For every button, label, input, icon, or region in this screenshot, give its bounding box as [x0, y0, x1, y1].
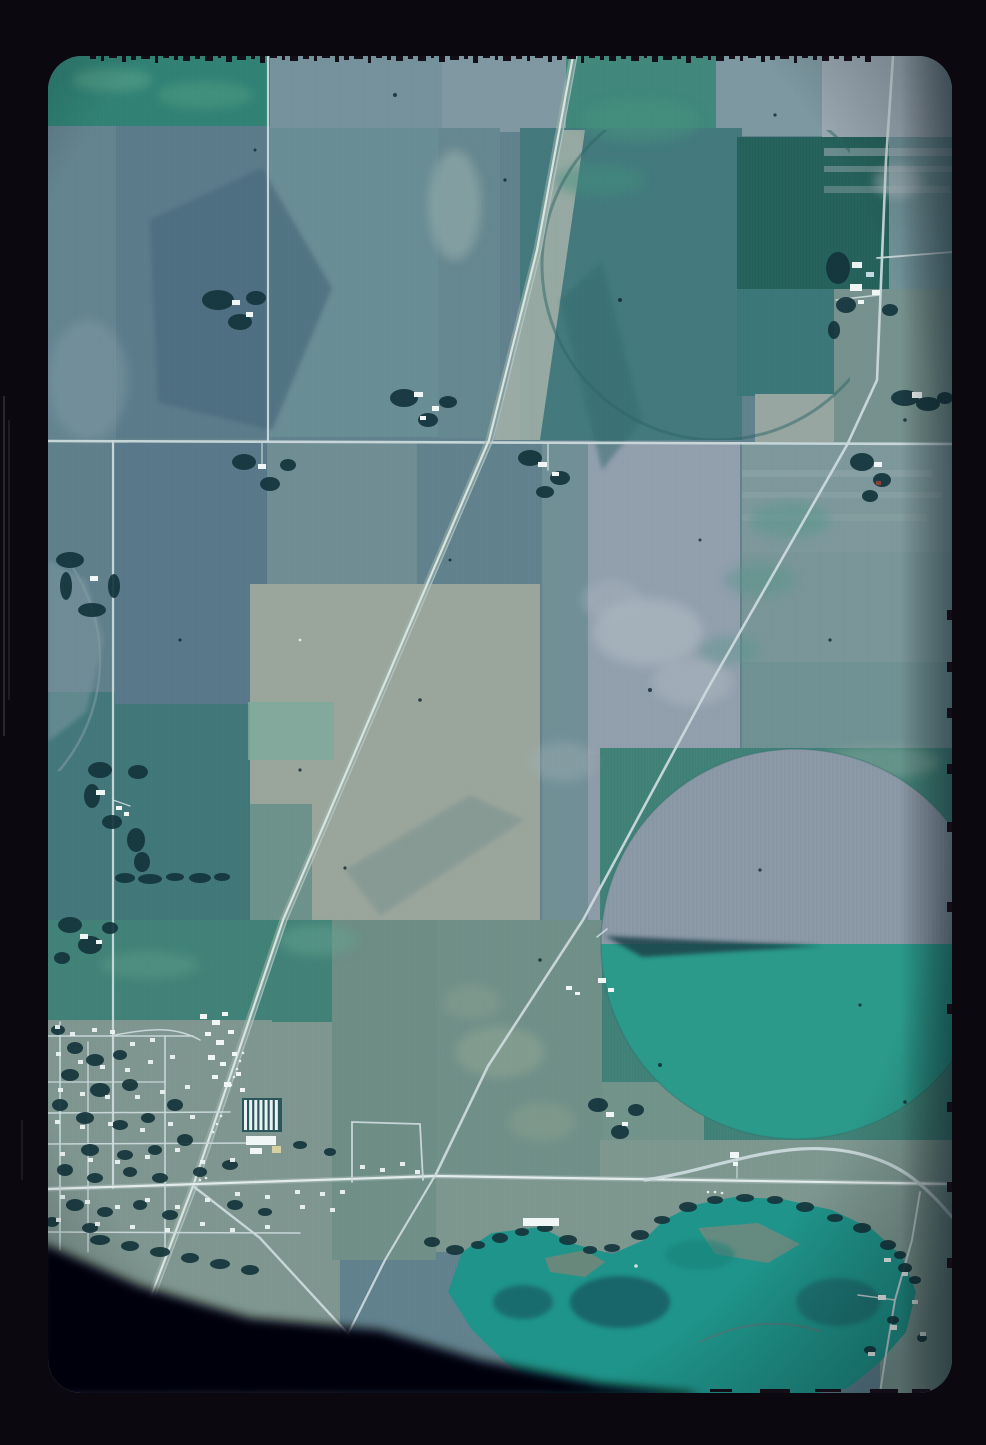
film-edge-tooth-top [686, 55, 691, 63]
dust-speck [903, 418, 907, 422]
film-edge-tooth-top [439, 55, 445, 62]
film-edge-tooth-top [260, 55, 265, 63]
film-edge-tooth-bottom [760, 1389, 790, 1393]
dust-speck [758, 868, 761, 871]
bright-speck [299, 639, 302, 642]
film-edge-tooth-top [794, 55, 797, 63]
dust-speck [773, 113, 776, 116]
film-edge-tooth-top [226, 55, 232, 62]
dust-speck [449, 559, 452, 562]
film-edge-tooth-top [652, 55, 658, 62]
vignette [48, 56, 952, 1393]
film-edge-tooth-top [122, 55, 126, 62]
dust-speck [178, 638, 181, 641]
slide-scan [0, 0, 986, 1445]
film-edge-tooth-top [865, 55, 871, 62]
dust-speck [418, 698, 422, 702]
dust-speck [648, 688, 652, 692]
dust-speck [858, 1003, 861, 1006]
dust-speck [503, 178, 506, 181]
right-edge-shade [900, 56, 952, 1393]
film-edge-tooth-top [548, 55, 552, 62]
dust-speck [828, 638, 831, 641]
film-edge-tooth-top [368, 55, 371, 63]
film-edge-tooth-top [155, 55, 158, 63]
dust-speck [343, 866, 346, 869]
film-edge-tooth-top [335, 55, 339, 62]
film-edge-tooth-top [581, 55, 584, 63]
dust-speck [538, 958, 542, 962]
dust-speck [903, 1100, 907, 1104]
dust-speck [393, 93, 397, 97]
photo-content [0, 55, 986, 1398]
bright-speck [634, 1264, 638, 1268]
film-edge-tooth-bottom [710, 1389, 732, 1392]
dust-speck [298, 768, 301, 771]
film-edge-tooth-top [761, 55, 765, 62]
aerial-photo-svg [0, 0, 986, 1445]
film-edge-tooth-bottom [815, 1389, 841, 1392]
dust-speck [254, 149, 257, 152]
photo-effects-layer [48, 56, 952, 1393]
dust-speck [699, 539, 702, 542]
film-edge-tooth-top [473, 55, 478, 63]
dust-speck [658, 1063, 662, 1067]
dust-speck [618, 298, 622, 302]
